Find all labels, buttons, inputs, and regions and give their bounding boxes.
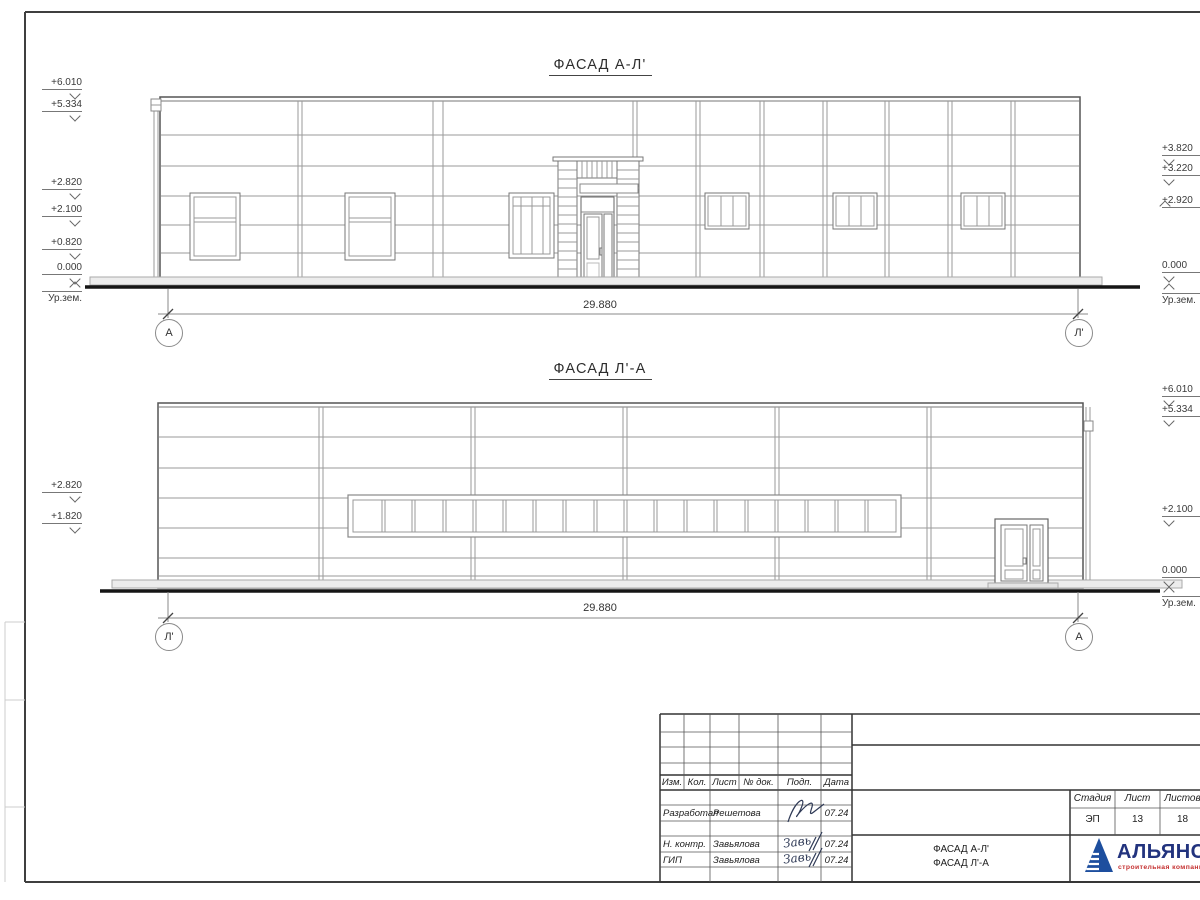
sheets-value: 18 xyxy=(1160,814,1200,825)
facade2-door xyxy=(988,519,1058,588)
role-razrabotal: Разработал xyxy=(663,808,718,819)
date-nkontr: 07.24 xyxy=(821,839,852,850)
revision-header-doc: № док. xyxy=(739,777,778,788)
revision-header-data: Дата xyxy=(821,777,852,788)
facade1-window-a1 xyxy=(190,193,240,260)
sheet-label: Лист xyxy=(1115,793,1160,804)
facade2-axis-right: А xyxy=(1065,623,1093,651)
facade2-downpipe xyxy=(1084,407,1093,580)
elevation-mark: +2.920 xyxy=(1162,195,1200,208)
sheet-value: 13 xyxy=(1115,814,1160,825)
role-gip: ГИП xyxy=(663,855,682,866)
name-zavyalova-1: Завьялова xyxy=(713,839,760,850)
facade1-window-entry xyxy=(509,193,554,258)
elevation-mark: +6.010 xyxy=(1162,384,1200,397)
elevation-mark: +1.820 xyxy=(42,511,82,524)
drawing-name-line2: ФАСАД Л'-А xyxy=(852,857,1070,870)
name-zavyalova-2: Завьялова xyxy=(713,855,760,866)
name-reshetova: Решетова xyxy=(713,808,761,819)
elevation-mark: +2.820 xyxy=(42,177,82,190)
elevation-mark: +2.100 xyxy=(1162,504,1200,517)
ground-level-mark: Ур.зем. xyxy=(1162,293,1200,306)
drawing-sheet: ФАСАД А-Л' ФАСАД Л'-А 29.880 29.880 А Л'… xyxy=(0,0,1200,900)
elevation-mark: +3.820 xyxy=(1162,143,1200,156)
facade1-base-and-ground xyxy=(85,277,1140,287)
stage-value: ЭП xyxy=(1070,814,1115,825)
stage-label: Стадия xyxy=(1070,793,1115,804)
revision-header-izm: Изм. xyxy=(660,777,684,788)
facade1-title: ФАСАД А-Л' xyxy=(400,57,800,73)
facade2-title: ФАСАД Л'-А xyxy=(400,361,800,377)
facade1-dimension: 29.880 xyxy=(540,299,660,311)
signature-reshetova xyxy=(788,800,824,822)
door-sill xyxy=(988,583,1058,588)
facade2-ribbon-window xyxy=(348,495,901,537)
elevation-mark: +2.820 xyxy=(42,480,82,493)
date-razrabotal: 07.24 xyxy=(821,808,852,819)
role-nkontr: Н. контр. xyxy=(663,839,706,850)
ground-level-mark: Ур.зем. xyxy=(1162,596,1200,609)
facade2-axis-left: Л' xyxy=(155,623,183,651)
company-logo-tagline: строительная компания xyxy=(1118,864,1200,871)
facade1-window-a2 xyxy=(345,193,395,260)
elevation-mark: 0.000 xyxy=(42,262,82,275)
entrance-sign-board xyxy=(580,184,638,193)
elevation-mark: +0.820 xyxy=(42,237,82,250)
sheets-label: Листов xyxy=(1160,793,1200,804)
revision-header-kol: Кол. xyxy=(684,777,710,788)
revision-header-list: Лист xyxy=(710,777,739,788)
revision-header-podp: Подп. xyxy=(778,777,821,788)
elevation-mark: +6.010 xyxy=(42,77,82,90)
elevation-mark: +5.334 xyxy=(1162,404,1200,417)
elevation-mark: +5.334 xyxy=(42,99,82,112)
facade1-axis-left: А xyxy=(155,319,183,347)
elevation-mark: 0.000 xyxy=(1162,565,1200,578)
facade1-entrance-portal xyxy=(553,157,643,283)
logo-pyramid-icon xyxy=(1085,838,1113,872)
facade2-dimension: 29.880 xyxy=(540,602,660,614)
company-logo-name: АЛЬЯНС xyxy=(1117,841,1200,864)
drawing-name-line1: ФАСАД А-Л' xyxy=(852,843,1070,856)
facade1-axis-right: Л' xyxy=(1065,319,1093,347)
elevation-mark: +3.220 xyxy=(1162,163,1200,176)
left-margin-table xyxy=(5,622,25,882)
elevation-mark: 0.000 xyxy=(1162,260,1200,273)
date-gip: 07.24 xyxy=(821,855,852,866)
drawing-canvas xyxy=(0,0,1200,900)
ground-level-mark: Ур.зем. xyxy=(42,291,82,304)
elevation-mark: +2.100 xyxy=(42,204,82,217)
